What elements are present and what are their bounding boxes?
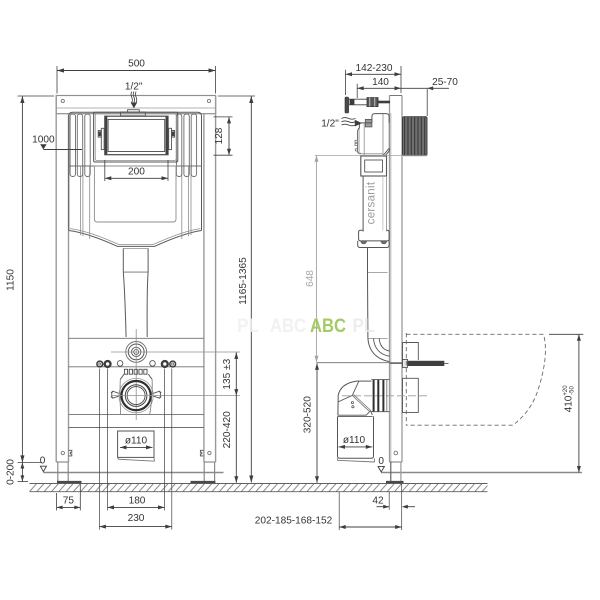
svg-text:ABC: ABC (270, 316, 306, 337)
svg-text:202-185-168-152: 202-185-168-152 (255, 515, 333, 526)
svg-text:42: 42 (372, 496, 384, 507)
svg-text:1150: 1150 (5, 269, 16, 291)
svg-text:500: 500 (128, 59, 145, 70)
svg-text:1/2": 1/2" (125, 81, 143, 92)
svg-text:ø110: ø110 (125, 435, 148, 446)
svg-text:135 ±3: 135 ±3 (222, 358, 233, 389)
svg-text:0-200: 0-200 (5, 459, 16, 485)
svg-text:ABC: ABC (310, 316, 346, 337)
svg-text:410: 410 (564, 395, 575, 412)
svg-text:142-230: 142-230 (355, 63, 392, 74)
svg-text:648: 648 (305, 270, 316, 287)
svg-text:PL: PL (353, 316, 375, 337)
svg-text:-50: -50 (569, 386, 575, 395)
svg-text:230: 230 (128, 513, 145, 524)
svg-text:0: 0 (40, 456, 46, 467)
svg-text:1000: 1000 (32, 134, 55, 145)
svg-text:25-70: 25-70 (432, 77, 458, 88)
svg-text:1/2": 1/2" (321, 118, 339, 129)
svg-text:ø110: ø110 (343, 435, 366, 446)
svg-text:75: 75 (63, 496, 75, 507)
svg-text:140: 140 (372, 77, 389, 88)
svg-text:200: 200 (128, 167, 145, 178)
svg-text:PL: PL (237, 316, 259, 337)
svg-text:cersanit: cersanit (365, 181, 377, 224)
svg-text:1165-1365: 1165-1365 (238, 257, 249, 305)
svg-text:180: 180 (129, 496, 146, 507)
svg-text:128: 128 (214, 127, 225, 144)
svg-text:0: 0 (378, 456, 384, 467)
svg-text:320-520: 320-520 (302, 396, 313, 433)
svg-text:+20: +20 (563, 385, 569, 396)
svg-text:220-420: 220-420 (222, 411, 233, 448)
